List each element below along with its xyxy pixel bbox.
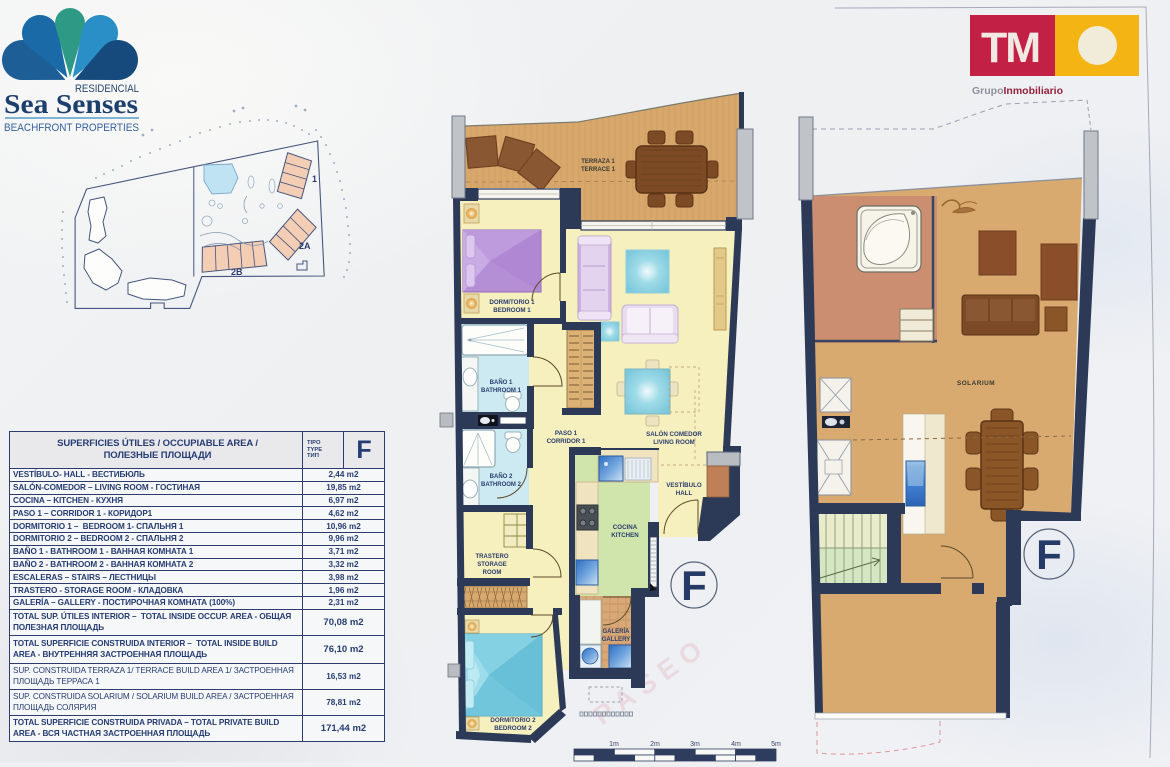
svg-text:TRASTERO: TRASTERO	[476, 554, 509, 560]
svg-text:GALLERY: GALLERY	[602, 637, 630, 643]
svg-text:TERRAZA 1: TERRAZA 1	[581, 159, 615, 165]
svg-text:DORMITORIO 2: DORMITORIO 2	[490, 717, 536, 724]
svg-text:BAÑO 2: BAÑO 2	[490, 473, 513, 480]
svg-text:3m: 3m	[690, 741, 700, 748]
svg-text:SOLARIUM: SOLARIUM	[957, 380, 995, 387]
svg-text:BAÑO 1: BAÑO 1	[490, 379, 513, 386]
svg-text:BEDROOM 2: BEDROOM 2	[494, 725, 532, 732]
svg-text:HALL: HALL	[676, 490, 693, 497]
svg-text:1m: 1m	[609, 741, 619, 748]
svg-text:GALERÍA: GALERÍA	[603, 627, 631, 635]
svg-text:LIVING ROOM: LIVING ROOM	[653, 439, 695, 446]
svg-text:PASO 1: PASO 1	[555, 430, 578, 437]
svg-text:ROOM: ROOM	[483, 570, 502, 576]
svg-text:CORRIDOR 1: CORRIDOR 1	[547, 438, 586, 445]
svg-text:VESTÍBULO: VESTÍBULO	[666, 481, 702, 489]
svg-text:SALÓN COMEDOR: SALÓN COMEDOR	[646, 430, 702, 438]
svg-text:1: 1	[312, 174, 317, 184]
svg-text:TERRACE 1: TERRACE 1	[581, 167, 616, 173]
svg-text:KITCHEN: KITCHEN	[611, 532, 639, 539]
svg-text:2A: 2A	[299, 241, 311, 251]
svg-text:BATHROOM 2: BATHROOM 2	[481, 482, 522, 488]
svg-text:5m: 5m	[771, 741, 781, 748]
svg-text:4m: 4m	[731, 741, 741, 748]
svg-text:F: F	[681, 562, 707, 609]
svg-text:F: F	[1036, 531, 1062, 578]
svg-text:2m: 2m	[650, 741, 660, 748]
svg-text:STORAGE: STORAGE	[477, 562, 507, 568]
svg-text:DORMITORIO 1: DORMITORIO 1	[489, 299, 535, 306]
svg-text:BEDROOM 1: BEDROOM 1	[493, 307, 531, 314]
svg-text:BATHROOM 1: BATHROOM 1	[481, 388, 522, 394]
svg-text:2B: 2B	[231, 267, 243, 277]
svg-text:COCINA: COCINA	[613, 524, 638, 531]
